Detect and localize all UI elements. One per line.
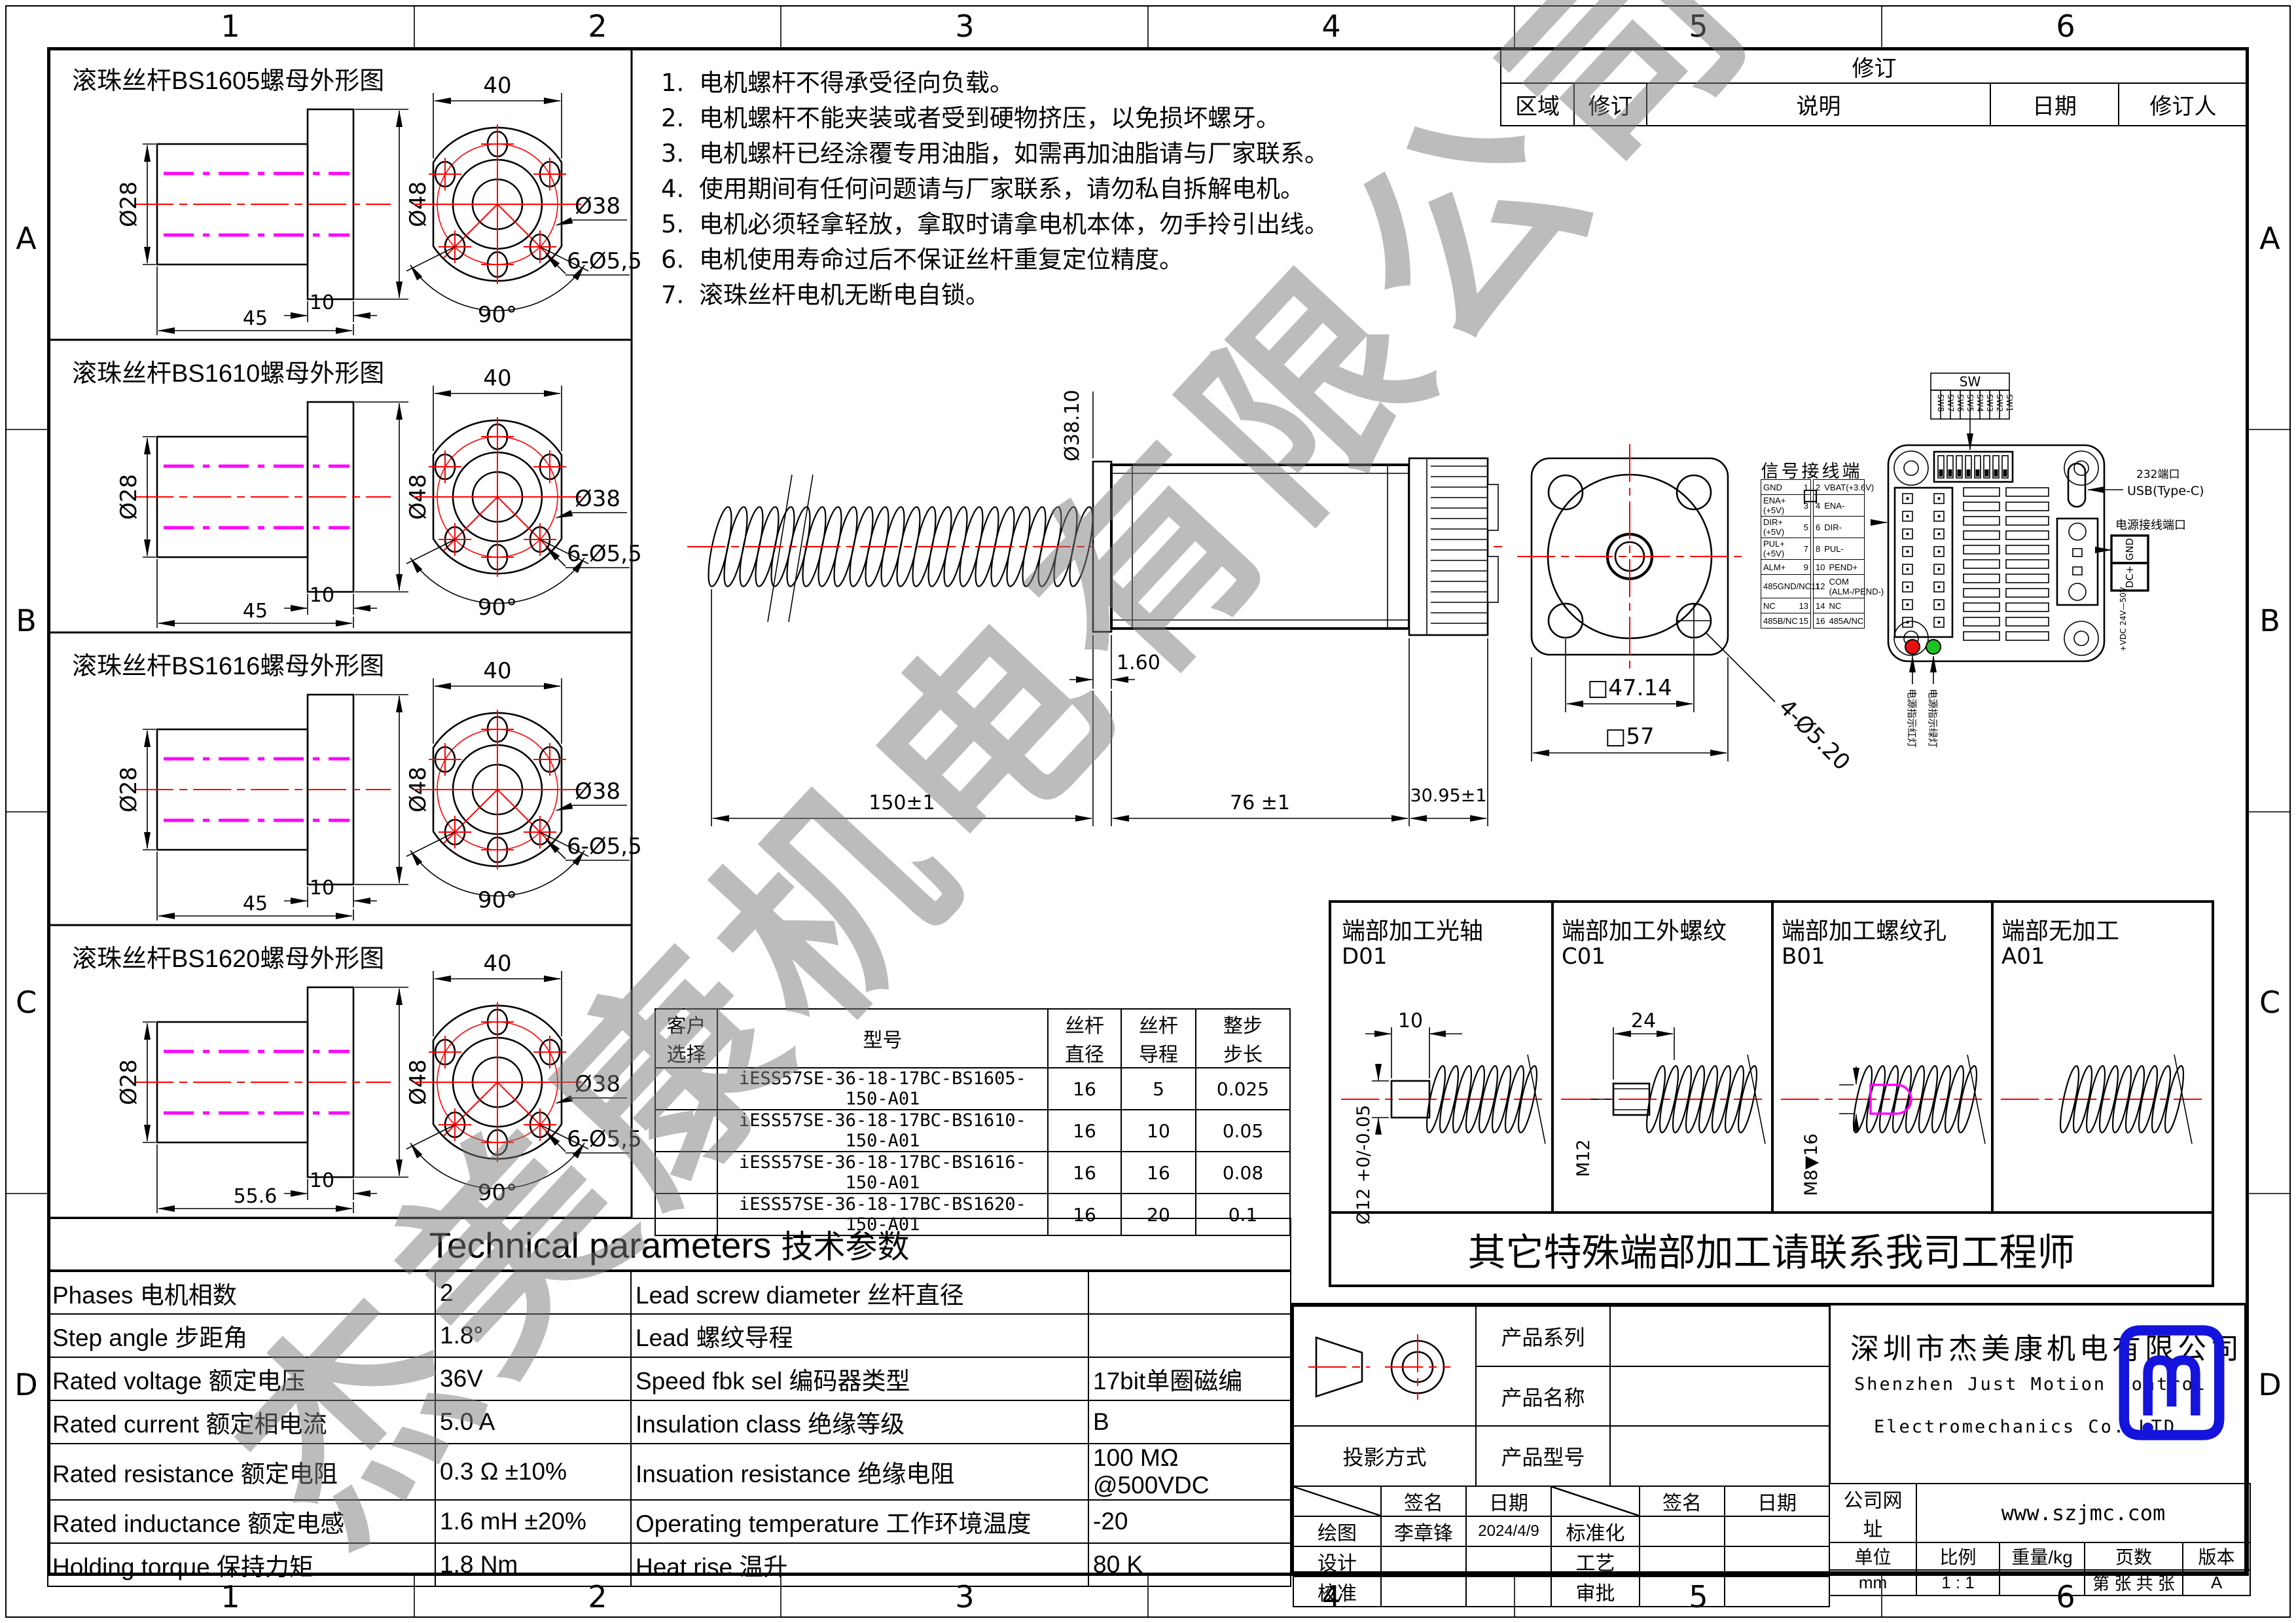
usb-port-label: USB(Type-C)	[2127, 484, 2204, 498]
signal-row-2: DIR+(+5V)5 6DIR-	[1761, 517, 1865, 538]
signal-pin-right: 6	[1816, 522, 1820, 532]
part-choice-cell	[655, 1110, 717, 1152]
nut-panel-3: 滚珠丝杆BS1620螺母外形图 Ø28 Ø48 10 55.6	[47, 925, 632, 1218]
nut-panel-1: 滚珠丝杆BS1610螺母外形图 Ø28 Ø48 10 45	[47, 340, 632, 632]
handling-notes: 1.电机螺杆不得承受径向负载。2.电机螺杆不能夹装或者受到硬物挤压，以免损坏螺牙…	[661, 65, 1512, 313]
part-row-0: iESS57SE-36-18-17BC-BS1605-150-A01 16 5 …	[655, 1068, 1290, 1110]
part-choice-cell	[655, 1068, 717, 1110]
sign-row-design-label: 设计	[1293, 1546, 1381, 1577]
part-dia: 16	[1048, 1068, 1121, 1110]
svg-text:SW1: SW1	[2005, 394, 2014, 412]
product-series-label: 产品系列	[1476, 1306, 1610, 1366]
signal-row-0: GND1 2VBAT(+3.6V)	[1761, 480, 1865, 495]
signal-pin-left: 3	[1804, 501, 1808, 511]
svg-text:90°: 90°	[478, 302, 517, 328]
revision-title: 修订	[1501, 50, 2248, 83]
part-step: 0.08	[1196, 1152, 1290, 1194]
signal-pin-left: 13	[1799, 601, 1808, 611]
motor-side-view: Ø38.10 1.60 150±1 76 ±1 30.95±1	[674, 367, 1518, 871]
usb-port-label-cn: 232端口	[2136, 468, 2179, 481]
meta-weight-value	[2000, 1570, 2085, 1596]
svg-text:90°: 90°	[478, 887, 517, 913]
tech-value-1: 5.0 A	[435, 1400, 631, 1444]
tech-label-2: Lead screw diameter 丝杆直径	[631, 1271, 1088, 1314]
tech-label-2: Speed fbk sel 编码器类型	[631, 1357, 1088, 1400]
meta-unit-value: mm	[1829, 1570, 1916, 1596]
signal-pin-left: 15	[1799, 616, 1808, 626]
signal-pin-right: 2	[1816, 483, 1820, 492]
part-col-dia: 丝杆 直径	[1048, 1009, 1121, 1068]
sign-slash-1	[1293, 1486, 1381, 1516]
svg-text:40: 40	[483, 365, 511, 392]
signal-name-right: DIR-	[1824, 522, 1842, 532]
svg-text:40: 40	[483, 951, 511, 977]
signal-name-right: PUL-	[1824, 544, 1844, 554]
signal-pin-right: 12	[1816, 581, 1825, 591]
svg-text:45: 45	[243, 307, 268, 330]
svg-text:30.95±1: 30.95±1	[1410, 786, 1486, 806]
signal-pin-right: 16	[1816, 616, 1825, 626]
product-model-value	[1610, 1426, 1829, 1486]
part-model: iESS57SE-36-18-17BC-BS1616-150-A01	[717, 1152, 1048, 1194]
svg-text:55.6: 55.6	[234, 1185, 278, 1208]
svg-text:Ø38: Ø38	[575, 486, 620, 512]
signal-name-right: VBAT(+3.6V)	[1824, 483, 1874, 492]
power-voltage-range: +VDC 24V—50V	[2119, 587, 2128, 651]
note-text: 使用期间有任何问题请与厂家联系，请勿私自拆解电机。	[699, 175, 1304, 202]
tech-value-2	[1088, 1271, 1291, 1314]
sign-row-draw-date: 2024/4/9	[1466, 1516, 1551, 1546]
note-number: 2.	[661, 101, 699, 136]
part-lead: 5	[1121, 1068, 1196, 1110]
signal-name-right: PEND+	[1829, 562, 1857, 572]
sign-header-name-1: 签名	[1381, 1486, 1466, 1516]
svg-text:□57: □57	[1605, 723, 1654, 750]
tech-row-3: Rated current 额定相电流 5.0 A Insulation cla…	[48, 1400, 1291, 1444]
part-col-step: 整步 步长	[1196, 1009, 1290, 1068]
svg-text:SW7: SW7	[1946, 394, 1955, 412]
meta-unit-label: 单位	[1829, 1542, 1916, 1570]
note-number: 1.	[661, 65, 699, 101]
note-number: 5.	[661, 207, 699, 242]
signal-pin-left: 7	[1804, 544, 1808, 554]
note-line-2: 3.电机螺杆已经涂覆专用油脂，如需再加油脂请与厂家联系。	[661, 136, 1512, 172]
product-name-value	[1610, 1366, 1829, 1426]
tech-row-5: Rated inductance 额定电感 1.6 mH ±20% Operat…	[48, 1500, 1291, 1543]
sign-header-date-2: 日期	[1725, 1486, 1829, 1516]
product-model-label: 产品型号	[1476, 1426, 1610, 1486]
part-step: 0.05	[1196, 1110, 1290, 1152]
led-green-label: 电源指示绿灯	[1927, 689, 1939, 748]
part-choice-cell	[655, 1152, 717, 1194]
nut-drawing-2: Ø28 Ø48 10 45	[47, 632, 632, 925]
tech-value-2: 17bit单圈磁编	[1088, 1357, 1291, 1400]
svg-text:SW4: SW4	[1975, 394, 1984, 412]
note-number: 7.	[661, 278, 699, 313]
svg-text:40: 40	[483, 73, 511, 99]
svg-text:10: 10	[310, 584, 334, 607]
svg-text:10: 10	[310, 291, 334, 314]
tech-label-1: Rated inductance 额定电感	[48, 1500, 435, 1543]
svg-text:GND: GND	[2124, 538, 2136, 560]
machining-b01-drawing: M8▼16	[1771, 903, 1991, 1214]
tech-label-1: Holding torque 保持力矩	[48, 1543, 435, 1586]
svg-text:Ø28: Ø28	[116, 474, 142, 520]
tech-row-1: Step angle 步距角 1.8° Lead 螺纹导程	[48, 1314, 1291, 1357]
svg-text:90°: 90°	[478, 594, 517, 621]
nut-drawing-0: Ø28 Ø48 10 45	[47, 47, 632, 340]
tech-row-2: Rated voltage 额定电压 36V Speed fbk sel 编码器…	[48, 1357, 1291, 1400]
svg-text:10: 10	[310, 1169, 334, 1192]
note-line-1: 2.电机螺杆不能夹装或者受到硬物挤压，以免损坏螺牙。	[661, 101, 1512, 136]
svg-text:1.60: 1.60	[1117, 651, 1160, 674]
sign-row-std-label: 标准化	[1551, 1516, 1640, 1546]
part-col-model: 型号	[717, 1009, 1048, 1068]
part-step: 0.025	[1196, 1068, 1290, 1110]
zone-number-top-4: 4	[1321, 9, 1340, 44]
tech-value-1: 2	[435, 1271, 631, 1314]
note-text: 电机螺杆不能夹装或者受到硬物挤压，以免损坏螺牙。	[699, 105, 1280, 132]
part-row-2: iESS57SE-36-18-17BC-BS1616-150-A01 16 16…	[655, 1152, 1290, 1194]
signal-pin-left: 9	[1804, 562, 1808, 572]
zone-number-top-3: 3	[955, 9, 974, 44]
zone-number-top-6: 6	[2056, 9, 2075, 44]
svg-text:6-Ø5,5: 6-Ø5,5	[567, 1126, 642, 1152]
machining-d01-drawing: 10 Ø12 +0/-0.05	[1331, 903, 1551, 1214]
technical-parameters-table: Technical parameters 技术参数 Phases 电机相数 2 …	[47, 1218, 1291, 1587]
svg-text:76 ±1: 76 ±1	[1230, 792, 1290, 814]
tech-label-1: Rated current 额定相电流	[48, 1400, 435, 1444]
tech-row-4: Rated resistance 额定电阻 0.3 Ω ±10% Insuati…	[48, 1444, 1291, 1500]
signal-pin-right: 10	[1816, 562, 1825, 572]
svg-text:24: 24	[1631, 1010, 1656, 1032]
part-lead: 16	[1121, 1152, 1196, 1194]
sign-row-draw-name: 李章锋	[1381, 1516, 1466, 1546]
sign-row-process-label: 工艺	[1551, 1546, 1640, 1577]
meta-version-value: A	[2183, 1570, 2250, 1596]
svg-text:Ø28: Ø28	[116, 181, 142, 227]
tech-label-1: Step angle 步距角	[48, 1314, 435, 1357]
power-port-title: 电源接线端口	[2115, 519, 2186, 532]
signal-name-right: NC	[1829, 601, 1841, 611]
svg-text:SW6: SW6	[1956, 394, 1965, 412]
tech-value-1: 1.8°	[435, 1314, 631, 1357]
tech-row-0: Phases 电机相数 2 Lead screw diameter 丝杆直径	[48, 1271, 1291, 1314]
end-machining-section: 端部加工光轴 D01 端部加工外螺纹 C01 端部加工螺纹孔 B01 端部无加工…	[1329, 900, 2214, 1287]
svg-text:Ø38.10: Ø38.10	[1061, 390, 1084, 462]
svg-text:M12: M12	[1573, 1139, 1594, 1177]
part-model: iESS57SE-36-18-17BC-BS1605-150-A01	[717, 1068, 1048, 1110]
revision-col-rev: 修订	[1574, 83, 1647, 126]
svg-text:Ø28: Ø28	[116, 767, 142, 812]
sign-header-date-1: 日期	[1466, 1486, 1551, 1516]
tech-value-2: -20	[1088, 1500, 1291, 1543]
svg-text:DC+: DC+	[2124, 566, 2136, 589]
signal-name-left: 485B/NC	[1763, 616, 1798, 626]
tech-value-1: 1.6 mH ±20%	[435, 1500, 631, 1543]
signal-name-left: GND	[1763, 483, 1782, 492]
sign-header-name-2: 签名	[1640, 1486, 1725, 1516]
part-col-choice: 客户 选择	[655, 1009, 717, 1068]
sw-title: SW	[1960, 374, 1981, 390]
signal-name-left: 485GND/NC	[1763, 581, 1811, 591]
part-dia: 16	[1048, 1110, 1121, 1152]
svg-text:10: 10	[1398, 1010, 1423, 1032]
signal-name-left: NC	[1763, 601, 1776, 611]
note-line-4: 5.电机必须轻拿轻放，拿取时请拿电机本体，勿手拎引出线。	[661, 207, 1512, 242]
note-line-5: 6.电机使用寿命过后不保证丝杆重复定位精度。	[661, 242, 1512, 278]
tech-value-1: 36V	[435, 1357, 631, 1400]
revision-col-desc: 说明	[1647, 83, 1990, 126]
svg-text:SW5: SW5	[1965, 394, 1975, 412]
note-text: 电机必须轻拿轻放，拿取时请拿电机本体，勿手拎引出线。	[699, 211, 1329, 238]
website-value: www.szjmc.com	[1916, 1484, 2250, 1542]
tech-label-1: Rated voltage 额定电压	[48, 1357, 435, 1400]
product-series-value	[1610, 1306, 1829, 1366]
meta-scale-value: 1 : 1	[1916, 1570, 2000, 1596]
projection-symbol-cell	[1293, 1306, 1476, 1426]
signal-pin-left: 1	[1804, 483, 1808, 492]
note-text: 电机螺杆不得承受径向负载。	[699, 69, 1014, 96]
svg-text:Ø38: Ø38	[575, 193, 620, 219]
note-text: 电机使用寿命过后不保证丝杆重复定位精度。	[699, 246, 1183, 273]
part-number-table: 客户 选择 型号 丝杆 直径 丝杆 导程 整步 步长 iESS57SE-36-1…	[655, 1008, 1291, 1236]
svg-text:SW2: SW2	[1995, 394, 2004, 412]
svg-text:90°: 90°	[478, 1180, 517, 1206]
led-red-label: 电源指示红灯	[1906, 689, 1918, 748]
projection-method-label: 投影方式	[1293, 1426, 1476, 1486]
power-led-red	[1905, 640, 1920, 654]
meta-pages-value: 第 张 共 张	[2085, 1570, 2183, 1596]
signal-pin-left: 5	[1804, 522, 1808, 532]
zone-letter-left-A: A	[16, 221, 36, 256]
note-text: 电机螺杆已经涂覆专用油脂，如需再加油脂请与厂家联系。	[699, 140, 1329, 167]
drawing-sheet: 杰美康机电有限公司 1.电机螺杆不得承受径向负载。2.电机螺杆不能夹装或者受到硬…	[0, 0, 2296, 1623]
tech-value-2: 80 K	[1088, 1543, 1291, 1586]
nut-drawing-1: Ø28 Ø48 10 45	[47, 340, 632, 632]
svg-text:SW3: SW3	[1985, 394, 1994, 412]
tech-row-6: Holding torque 保持力矩 1.8 Nm Heat rise 温升 …	[48, 1543, 1291, 1586]
svg-text:45: 45	[243, 892, 268, 915]
svg-text:M8▼16: M8▼16	[1801, 1133, 1821, 1196]
projection-symbol	[1303, 1315, 1467, 1413]
svg-text:40: 40	[483, 658, 511, 684]
product-name-label: 产品名称	[1476, 1366, 1610, 1426]
svg-text:6-Ø5,5: 6-Ø5,5	[567, 541, 642, 567]
meta-pages-label: 页数	[2085, 1542, 2183, 1570]
zone-letter-left-D: D	[14, 1367, 37, 1402]
revision-col-person: 修订人	[2119, 83, 2248, 126]
zone-letter-right-D: D	[2258, 1367, 2281, 1402]
machining-a01-drawing	[1991, 903, 2211, 1214]
svg-text:10: 10	[310, 877, 334, 900]
note-number: 4.	[661, 172, 699, 207]
note-text: 滚珠丝杆电机无断电自锁。	[699, 282, 990, 308]
zone-letter-left-B: B	[16, 603, 37, 638]
tech-label-2: Heat rise 温升	[631, 1543, 1088, 1586]
website-label: 公司网址	[1829, 1484, 1916, 1542]
svg-text:SW8: SW8	[1936, 394, 1945, 412]
nut-drawing-3: Ø28 Ø48 10 55.6	[47, 925, 632, 1218]
svg-text:6-Ø5,5: 6-Ø5,5	[567, 833, 642, 860]
signal-row-7: 485B/NC15 16485A/NC	[1761, 613, 1865, 629]
sign-slash-2	[1551, 1486, 1640, 1516]
meta-weight-label: 重量/kg	[2000, 1542, 2085, 1570]
signal-port-table: GND1 2VBAT(+3.6V) ENA+(+5V)3 4ENA- DIR+(…	[1761, 479, 1865, 629]
machining-banner: 其它特殊端部加工请联系我司工程师	[1331, 1211, 2212, 1285]
part-dia: 16	[1048, 1152, 1121, 1194]
driver-rear-view: SW SW8 SW7 SW6 SW5 SW4 SW3 SW2 SW1 电源指示红…	[1872, 354, 2291, 746]
svg-text:Ø12 +0/-0.05: Ø12 +0/-0.05	[1354, 1105, 1374, 1225]
tech-value-1: 1.8 Nm	[435, 1543, 631, 1586]
signal-name-right: ENA-	[1824, 501, 1844, 511]
revision-col-zone: 区域	[1501, 83, 1574, 126]
svg-text:Ø38: Ø38	[575, 778, 620, 805]
zone-letter-right-A: A	[2259, 221, 2280, 256]
tech-value-2: 100 MΩ @500VDC	[1088, 1444, 1291, 1500]
revision-table: 修订 区域 修订 说明 日期 修订人	[1500, 49, 2248, 126]
signal-name-left: DIR+(+5V)	[1763, 517, 1804, 537]
signal-row-3: PUL+(+5V)7 8PUL-	[1761, 538, 1865, 560]
signal-name-left: ALM+	[1763, 562, 1785, 572]
part-model: iESS57SE-36-18-17BC-BS1610-150-A01	[717, 1110, 1048, 1152]
note-line-6: 7.滚珠丝杆电机无断电自锁。	[661, 278, 1512, 313]
meta-scale-label: 比例	[1916, 1542, 2000, 1570]
tech-label-2: Insuation resistance 绝缘电阻	[631, 1444, 1088, 1500]
part-row-1: iESS57SE-36-18-17BC-BS1610-150-A01 16 10…	[655, 1110, 1290, 1152]
signal-name-right: 485A/NC	[1829, 616, 1863, 626]
tech-value-1: 0.3 Ω ±10%	[435, 1444, 631, 1500]
svg-text:45: 45	[243, 600, 268, 623]
machining-c01-drawing: 24 M12	[1551, 903, 1771, 1214]
note-line-0: 1.电机螺杆不得承受径向负载。	[661, 65, 1512, 101]
part-col-lead: 丝杆 导程	[1121, 1009, 1196, 1068]
meta-version-label: 版本	[2183, 1542, 2250, 1570]
signal-pin-right: 14	[1816, 601, 1825, 611]
tech-value-2	[1088, 1314, 1291, 1357]
signal-row-6: NC13 14NC	[1761, 598, 1865, 613]
sign-row-check-label: 校准	[1293, 1577, 1381, 1607]
tech-label-1: Phases 电机相数	[48, 1271, 435, 1314]
zone-number-top-2: 2	[588, 9, 607, 44]
tech-table-title: Technical parameters 技术参数	[48, 1218, 1291, 1271]
nut-panel-0: 滚珠丝杆BS1605螺母外形图 Ø28 Ø48 10 45	[47, 47, 632, 340]
company-block: 深圳市杰美康机电有限公司 Shenzhen Just Motion Contro…	[1829, 1305, 2246, 1483]
tech-label-2: Lead 螺纹导程	[631, 1314, 1088, 1357]
svg-text:□47.14: □47.14	[1587, 675, 1672, 701]
svg-text:Ø28: Ø28	[116, 1059, 142, 1105]
tech-label-1: Rated resistance 额定电阻	[48, 1444, 435, 1500]
tech-value-2: B	[1088, 1400, 1291, 1444]
jmc-logo	[2106, 1317, 2237, 1448]
signal-row-5: 485GND/NC11 12COM (ALM-/PEND-)	[1761, 575, 1865, 598]
signal-row-4: ALM+9 10PEND+	[1761, 560, 1865, 575]
revision-col-date: 日期	[1990, 83, 2119, 126]
zone-number-top-1: 1	[221, 9, 240, 44]
part-lead: 10	[1121, 1110, 1196, 1152]
zone-letter-left-C: C	[16, 985, 37, 1020]
note-number: 3.	[661, 136, 699, 172]
svg-text:6-Ø5,5: 6-Ø5,5	[567, 248, 642, 274]
power-led-green	[1926, 640, 1941, 654]
zone-letter-right-C: C	[2259, 985, 2280, 1020]
signal-row-1: ENA+(+5V)3 4ENA-	[1761, 495, 1865, 517]
svg-text:Ø38: Ø38	[575, 1071, 620, 1097]
title-block: 产品系列 产品名称 投影方式 产品型号 签名 日期 签名 日期	[1290, 1303, 2247, 1574]
note-line-3: 4.使用期间有任何问题请与厂家联系，请勿私自拆解电机。	[661, 172, 1512, 207]
nut-panel-2: 滚珠丝杆BS1616螺母外形图 Ø28 Ø48 10 45	[47, 632, 632, 925]
sign-row-approve-label: 审批	[1551, 1577, 1640, 1607]
tech-label-2: Operating temperature 工作环境温度	[631, 1500, 1088, 1543]
note-number: 6.	[661, 242, 699, 278]
signal-pin-right: 8	[1816, 544, 1820, 554]
svg-text:150±1: 150±1	[869, 792, 935, 814]
signal-name-left: PUL+(+5V)	[1763, 539, 1804, 558]
tech-label-2: Insulation class 绝缘等级	[631, 1400, 1088, 1444]
signal-name-left: ENA+(+5V)	[1763, 496, 1804, 515]
zone-number-top-5: 5	[1689, 9, 1708, 44]
signal-pin-right: 4	[1816, 501, 1820, 511]
sign-row-draw-label: 绘图	[1293, 1516, 1381, 1546]
